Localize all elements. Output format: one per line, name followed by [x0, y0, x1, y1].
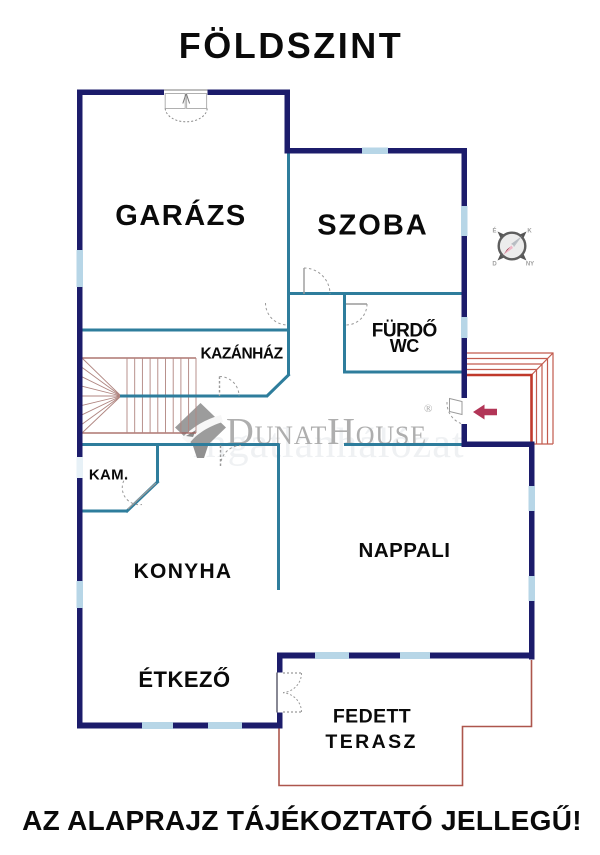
svg-text:DUNATHOUSE: DUNATHOUSE: [226, 411, 427, 453]
svg-text:GARÁZS: GARÁZS: [115, 198, 246, 232]
svg-text:®: ®: [424, 403, 432, 415]
svg-text:SZOBA: SZOBA: [317, 210, 429, 242]
svg-text:AZ ALAPRAJZ TÁJÉKOZTATÓ JELLEG: AZ ALAPRAJZ TÁJÉKOZTATÓ JELLEGŰ!: [22, 805, 582, 836]
svg-text:KONYHA: KONYHA: [134, 560, 233, 583]
svg-text:KAM.: KAM.: [89, 467, 129, 484]
svg-text:KAZÁNHÁZ: KAZÁNHÁZ: [200, 346, 283, 363]
svg-text:ÉTKEZŐ: ÉTKEZŐ: [138, 667, 230, 692]
svg-text:FÖLDSZINT: FÖLDSZINT: [179, 25, 403, 66]
svg-text:D: D: [492, 262, 497, 268]
svg-text:É: É: [492, 227, 496, 235]
svg-text:NAPPALI: NAPPALI: [359, 539, 451, 562]
svg-text:K: K: [527, 229, 532, 235]
svg-text:TERASZ: TERASZ: [325, 731, 417, 753]
svg-text:FEDETT: FEDETT: [333, 706, 411, 728]
svg-text:WC: WC: [390, 336, 419, 356]
svg-text:NY: NY: [526, 262, 534, 268]
